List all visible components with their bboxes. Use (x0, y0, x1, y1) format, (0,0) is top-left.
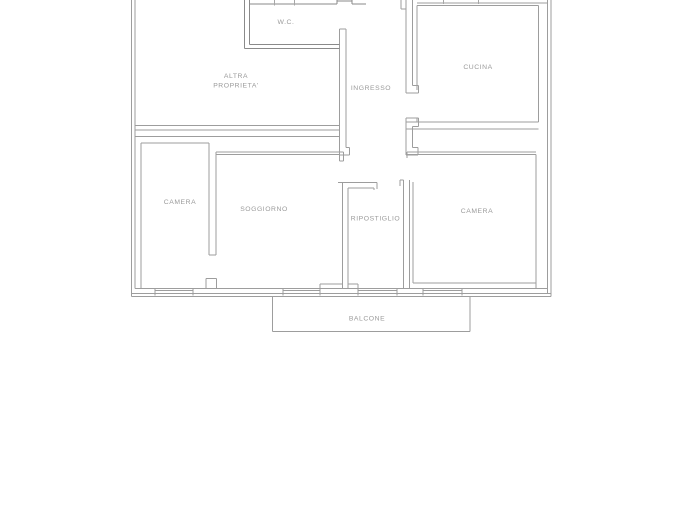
room-label-balcone: BALCONE (349, 316, 385, 323)
walls-ripostiglio (338, 183, 377, 289)
wall-layer (132, 0, 552, 332)
room-label-ingresso: INGRESSO (351, 85, 391, 92)
room-label-camera-left: CAMERA (164, 199, 196, 206)
wall-ingresso-right (401, 0, 419, 155)
wall-wc-ingresso (340, 29, 350, 155)
walls-altra-proprieta-bottom (135, 126, 340, 137)
walls-wc (245, 0, 367, 49)
windows-bottom-wall (155, 289, 462, 296)
room-label-ripostiglio: RIPOSTIGLIO (351, 216, 400, 223)
balcony-door-threshold (320, 284, 358, 289)
balcony-walls (273, 297, 471, 332)
floor-plan-svg: W.C. ALTRA PROPRIETA' INGRESSO CUCINA CA… (0, 0, 700, 526)
walls-camera-left (141, 143, 217, 289)
room-labels: W.C. ALTRA PROPRIETA' INGRESSO CUCINA CA… (164, 19, 493, 323)
room-label-cucina: CUCINA (463, 64, 492, 71)
room-label-camera-right: CAMERA (461, 208, 493, 215)
floor-plan-page: W.C. ALTRA PROPRIETA' INGRESSO CUCINA CA… (0, 0, 700, 526)
wall-layer-dark (245, 0, 367, 49)
room-label-wc: W.C. (278, 19, 295, 26)
walls-camera-right (400, 152, 536, 289)
room-label-altra-proprieta-line2: PROPRIETA' (213, 83, 259, 90)
wall-soggiorno-top (216, 152, 344, 161)
exterior-walls (132, 0, 552, 297)
room-label-soggiorno: SOGGIORNO (240, 206, 288, 213)
room-label-altra-proprieta-line1: ALTRA (224, 73, 248, 80)
